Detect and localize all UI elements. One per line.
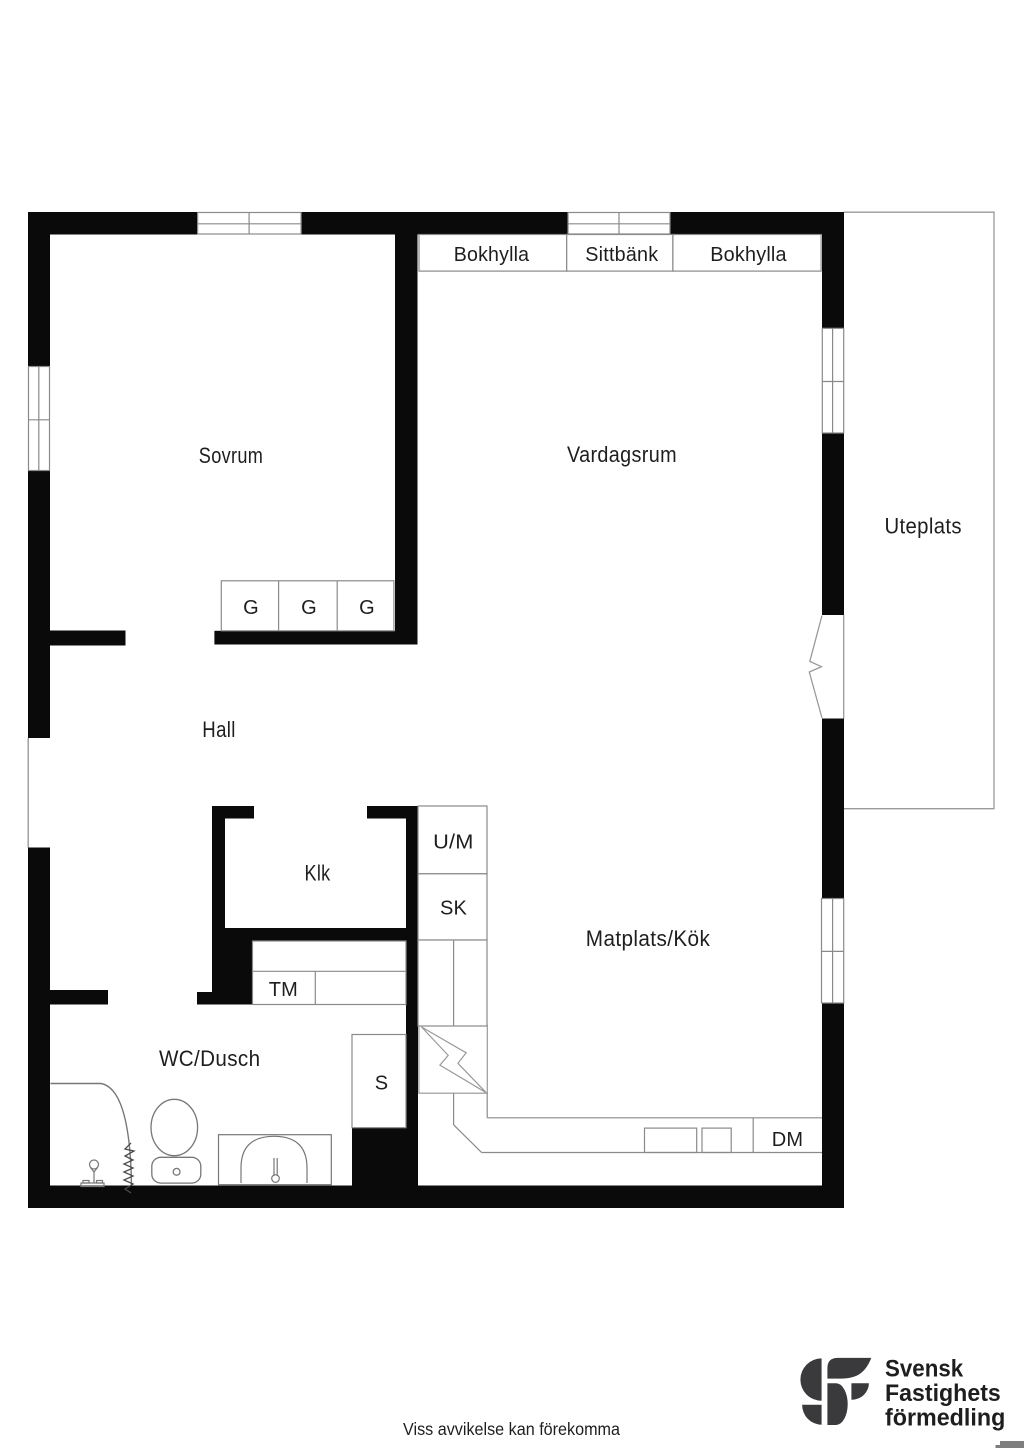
- svg-text:Sittbänk: Sittbänk: [585, 244, 659, 266]
- svg-text:G: G: [359, 597, 375, 619]
- svg-text:Uteplats: Uteplats: [884, 514, 962, 539]
- svg-text:Svensk: Svensk: [885, 1356, 964, 1383]
- svg-text:G: G: [243, 597, 259, 619]
- svg-text:SK: SK: [440, 898, 468, 920]
- svg-text:WC/Dusch: WC/Dusch: [159, 1046, 261, 1071]
- svg-text:Bokhylla: Bokhylla: [454, 244, 530, 266]
- svg-text:U/M: U/M: [433, 832, 474, 854]
- svg-text:DM: DM: [772, 1129, 804, 1151]
- svg-text:förmedling: förmedling: [885, 1405, 1005, 1432]
- svg-text:Viss avvikelse kan förekomma: Viss avvikelse kan förekomma: [403, 1419, 620, 1439]
- svg-text:Hall: Hall: [202, 717, 235, 742]
- svg-text:Bokhylla: Bokhylla: [710, 244, 787, 266]
- svg-text:Matplats/Kök: Matplats/Kök: [586, 926, 711, 951]
- svg-text:Fastighets: Fastighets: [885, 1380, 1001, 1407]
- svg-text:Vardagsrum: Vardagsrum: [567, 442, 677, 467]
- svg-text:Klk: Klk: [305, 861, 331, 886]
- svg-text:Sovrum: Sovrum: [199, 443, 263, 468]
- svg-text:TM: TM: [269, 979, 298, 1001]
- svg-text:S: S: [375, 1073, 389, 1095]
- svg-text:G: G: [301, 597, 317, 619]
